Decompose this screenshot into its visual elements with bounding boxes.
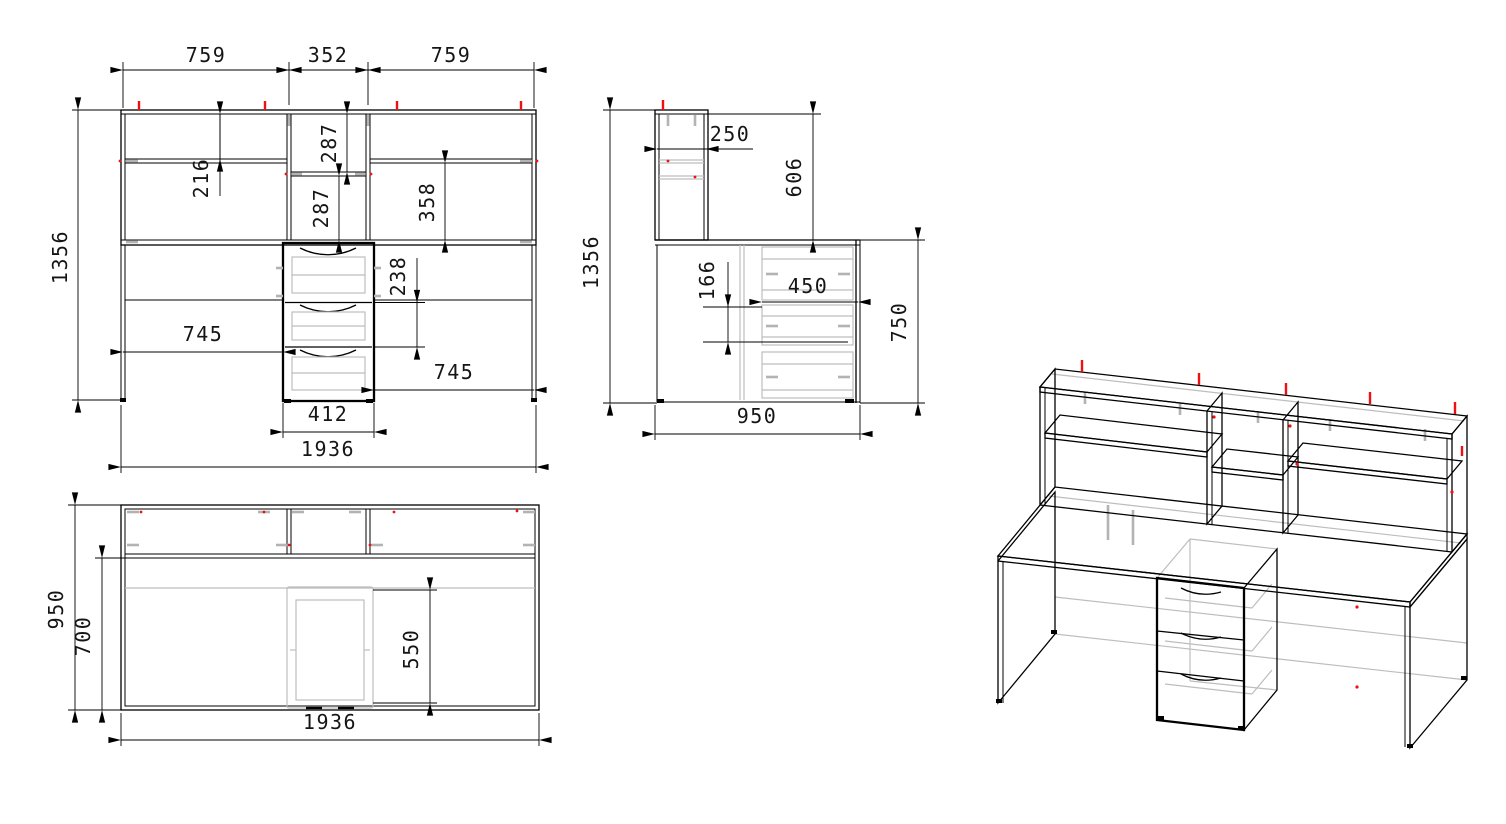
iso-hidden-lines: [1049, 374, 1467, 694]
side-dim-total-depth: 950: [655, 404, 860, 440]
front-drawer-pedestal: [283, 243, 374, 403]
top-dim-total-depth: 950: [44, 505, 121, 710]
side-dim-drawer-depth: 450: [762, 274, 858, 302]
side-dim-drawer-gap: 166: [695, 260, 848, 342]
dim-side-total-height: 1356: [579, 235, 603, 289]
iso-desk: [996, 487, 1467, 748]
front-dim-drawer-pitch: 238: [374, 256, 425, 347]
isometric-view: [996, 360, 1467, 748]
dim-front-right-shelf: 358: [415, 182, 439, 223]
side-hutch-column: [655, 100, 708, 240]
front-dim-top-left: 759: [123, 43, 289, 108]
top-dim-front-depth: 700: [71, 558, 125, 710]
drawer-handle-3: [300, 350, 356, 357]
side-desk-panel: [655, 240, 860, 403]
front-dim-top-right: 759: [368, 43, 534, 108]
side-dim-hutch-depth: 250: [657, 122, 753, 149]
dim-side-desk-height: 750: [887, 302, 911, 343]
dim-front-left-shelf: 216: [189, 158, 213, 199]
front-dim-top-mid: 352: [289, 43, 368, 105]
dim-top-total-width: 1936: [303, 710, 357, 734]
dim-front-drawer-pitch: 238: [386, 256, 410, 297]
dim-front-pedestal-width: 412: [308, 402, 349, 426]
dim-front-left-clear: 745: [183, 322, 224, 346]
dim-front-mid-upper: 287: [317, 123, 341, 164]
side-dim-total-height: 1356: [579, 110, 657, 403]
front-dim-left-clear: 745: [123, 322, 283, 352]
dim-side-drawer-gap: 166: [695, 260, 719, 301]
dim-side-hutch-depth: 250: [710, 122, 751, 146]
dim-front-mid-lower: 287: [309, 188, 333, 229]
dim-front-height: 1356: [48, 230, 72, 284]
side-drawer-boxes: [762, 247, 853, 398]
front-view: 759 352 759 1356 216 287 28: [48, 43, 538, 473]
front-dim-mid-lower: 287: [309, 176, 339, 240]
dim-front-top-right: 759: [431, 43, 472, 67]
top-drawer-unit: [287, 587, 373, 708]
technical-drawing-page: 759 352 759 1356 216 287 28: [0, 0, 1506, 824]
top-desk-outline: [121, 505, 539, 710]
front-dim-left-shelf: 216: [189, 114, 220, 198]
top-fastener-marks: [140, 510, 519, 547]
dim-top-pedestal-depth: 550: [399, 629, 423, 670]
iso-drawer-handle-1: [1181, 588, 1221, 594]
dim-front-top-mid: 352: [308, 43, 349, 67]
front-dim-height: 1356: [48, 110, 121, 400]
dim-top-total-depth: 950: [44, 589, 68, 630]
dim-side-total-depth: 950: [737, 404, 778, 428]
front-dim-right-shelf: 358: [415, 163, 445, 240]
technical-drawing-canvas: 759 352 759 1356 216 287 28: [0, 0, 1506, 824]
drawer-handle-1: [300, 248, 356, 255]
dim-side-hutch-height: 606: [782, 157, 806, 198]
dim-front-top-left: 759: [186, 43, 227, 67]
drawer-handle-2: [300, 305, 356, 312]
dim-top-front-depth: 700: [71, 616, 95, 657]
front-dim-mid-upper: 287: [317, 114, 347, 172]
top-dim-pedestal-depth: 550: [373, 590, 437, 703]
dim-front-total-width: 1936: [301, 437, 355, 461]
front-dim-right-clear: 745: [374, 360, 534, 390]
side-dim-desk-height: 750: [860, 240, 925, 403]
side-view: 250 606 1356 166 450 750: [579, 100, 925, 440]
dim-side-drawer-depth: 450: [788, 274, 829, 298]
top-cam-marks: [127, 512, 535, 545]
top-dim-total-width: 1936: [121, 710, 539, 746]
front-dim-pedestal-width: 412: [283, 402, 374, 438]
top-view: 950 700 550 1936: [44, 505, 539, 746]
dim-front-right-clear: 745: [434, 360, 475, 384]
